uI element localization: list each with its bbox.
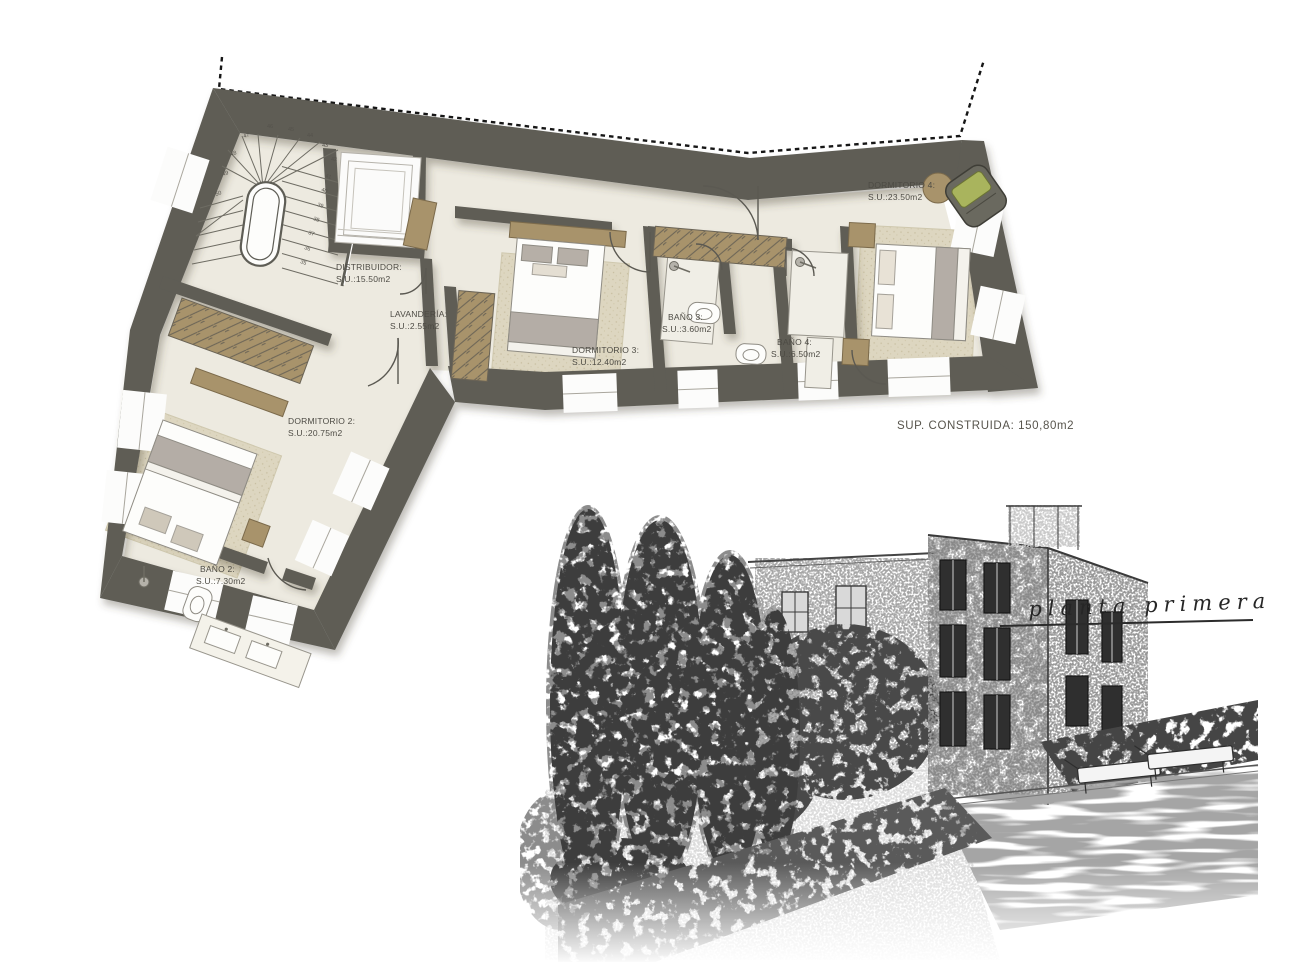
room-label-dormitorio3-name: DORMITORIO 3:	[572, 345, 639, 355]
room-label-bano3-area: S.U.:3.60m2	[662, 324, 712, 334]
plan-sheet: 35363738394041424344454647484950	[0, 0, 1300, 966]
stair-step-number: 44	[307, 133, 313, 139]
stair-step-number: 42	[331, 157, 337, 163]
room-label-distribuidor-name: DISTRIBUIDOR:	[336, 262, 402, 272]
elevation-sketch	[515, 505, 1258, 962]
dormitorio3-wardrobe	[451, 291, 495, 382]
room-label-distribuidor-area: S.U.:15.50m2	[336, 274, 390, 284]
stair-step-number: 43	[322, 143, 328, 149]
room-label-lavanderia-area: S.U.:2.55m2	[390, 321, 440, 331]
room-label-bano4-area: S.U.:6.50m2	[771, 349, 821, 359]
built-area-label: SUP. CONSTRUIDA: 150,80m2	[897, 420, 1074, 432]
room-label-dormitorio3-area: S.U.:12.40m2	[572, 357, 626, 367]
room-label-bano3-name: BAÑO 3:	[668, 312, 703, 322]
room-label-bano2-area: S.U.:7.30m2	[196, 576, 246, 586]
room-label-dormitorio2-name: DORMITORIO 2:	[288, 416, 355, 426]
room-label-dormitorio4-area: S.U.:23.50m2	[868, 192, 922, 202]
room-label-lavanderia-name: LAVANDERÍA:	[390, 309, 447, 319]
stair-step-number: 46	[267, 124, 273, 130]
room-label-dormitorio4-name: DORMITORIO 4:	[868, 180, 935, 190]
room-label-bano4-name: BAÑO 4:	[777, 337, 812, 347]
stair-step-number: 45	[288, 127, 294, 133]
room-label-bano2-name: BAÑO 2:	[200, 564, 235, 574]
room-label-dormitorio2-area: S.U.:20.75m2	[288, 428, 342, 438]
